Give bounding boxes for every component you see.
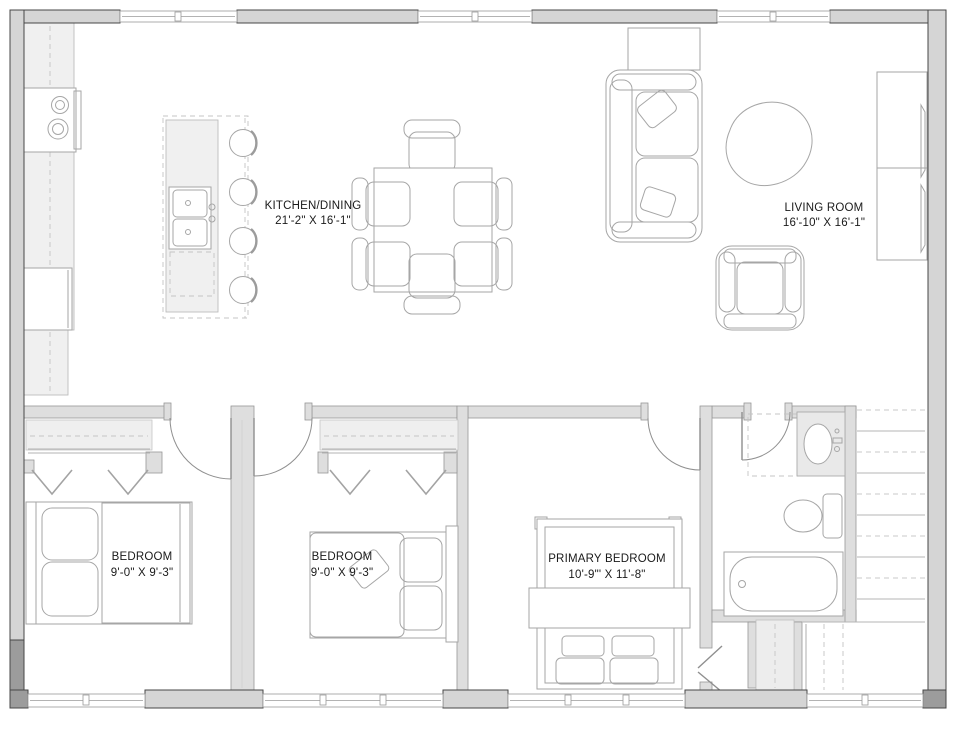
- room-label-primary-bedroom: PRIMARY BEDROOM: [548, 553, 666, 565]
- plan-background: [0, 0, 956, 737]
- room-label-bedroom-2: BEDROOM: [312, 551, 373, 563]
- bedroom2-bed-icon: [310, 526, 458, 642]
- room-dimensions-bedroom-1: 9'-0" X 9'-3": [111, 567, 173, 579]
- room-label-living-room: LIVING ROOM: [785, 202, 864, 214]
- window: [508, 694, 685, 707]
- window: [28, 694, 145, 707]
- refrigerator-icon: [24, 268, 72, 330]
- window: [418, 11, 532, 22]
- wall-bed2-primary: [457, 406, 468, 690]
- floor-plan: KITCHEN/DINING 21'-2" X 16'-1" LIVING RO…: [0, 0, 956, 737]
- sofa-icon: [606, 70, 702, 242]
- room-dimensions-kitchen-dining: 21'-2" X 16'-1": [275, 215, 351, 227]
- under-stair-closet: [756, 620, 794, 690]
- console-table-icon: [628, 28, 700, 70]
- bedroom1-bed-icon: [26, 502, 192, 624]
- primary-bed-icon: [529, 517, 690, 689]
- media-cabinet-icon: [877, 72, 927, 260]
- window: [120, 11, 237, 22]
- room-dimensions-bedroom-2: 9'-0" X 9'-3": [311, 567, 373, 579]
- bathtub-icon: [724, 552, 843, 616]
- room-label-kitchen-dining: KITCHEN/DINING: [265, 200, 362, 212]
- room-dimensions-primary-bedroom: 10'-9"' X 11'-8": [568, 569, 645, 581]
- range-cooktop-icon: [24, 88, 81, 152]
- room-label-bedroom-1: BEDROOM: [112, 551, 173, 563]
- closet-shelf: [320, 420, 458, 450]
- window: [263, 694, 443, 707]
- bar-stool-icon: [230, 179, 257, 206]
- room-dimensions-living-room: 16'-10" X 16'-1": [783, 217, 865, 229]
- window: [717, 11, 830, 22]
- bar-stool-icon: [230, 130, 257, 157]
- double-sink-icon: [169, 187, 215, 249]
- armchair-icon: [716, 246, 804, 330]
- floor-plan-canvas: KITCHEN/DINING 21'-2" X 16'-1" LIVING RO…: [0, 0, 956, 737]
- closet-shelf: [26, 420, 152, 450]
- window: [807, 694, 923, 707]
- wall-primary-bath: [700, 406, 712, 648]
- bar-stool-icon: [230, 277, 257, 304]
- wall-bed1-bed2: [231, 406, 254, 690]
- bar-stool-icon: [230, 228, 257, 255]
- dining-table-icon: [374, 168, 492, 292]
